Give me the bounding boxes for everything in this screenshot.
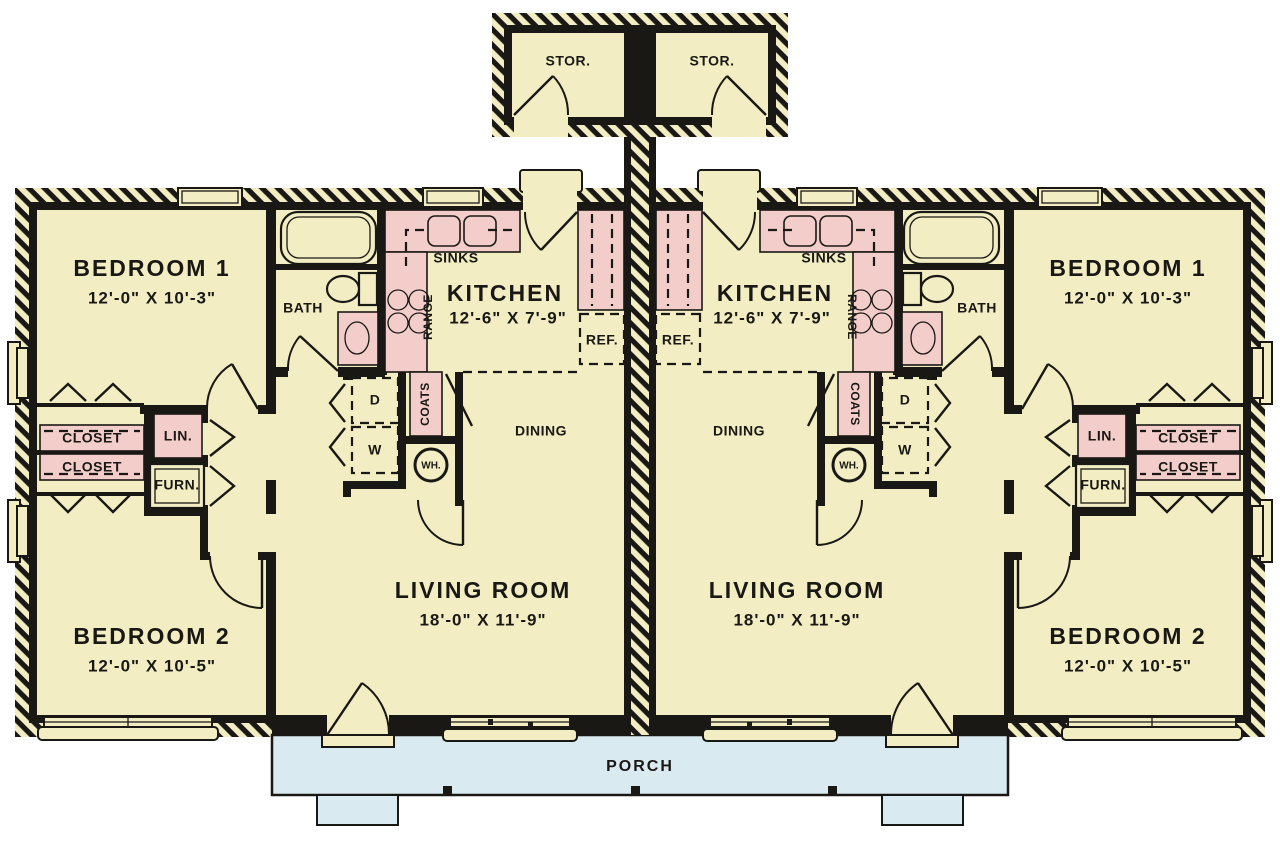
closet-lower-label-right: CLOSET xyxy=(1158,459,1218,475)
living-dims-right: 18'-0" X 11'-9" xyxy=(733,610,860,629)
bedroom1-name-right: BEDROOM 1 xyxy=(1049,255,1206,281)
bath-label-right: BATH xyxy=(957,300,997,316)
kitchen-dims-left: 12'-6" X 7'-9" xyxy=(449,308,567,327)
storage-label-left: STOR. xyxy=(545,53,590,69)
kitchen-name-left: KITCHEN xyxy=(447,280,563,306)
coats-label-right: COATS xyxy=(848,382,862,426)
washer-label-right: W xyxy=(898,442,912,458)
water-heater-label-right: WH. xyxy=(839,461,859,472)
sinks-label-right: SINKS xyxy=(801,250,846,266)
floor-plan: STOR. STOR. PORCH BEDROOM 1 12'-0" X 10'… xyxy=(0,0,1280,845)
porch-post xyxy=(631,786,640,795)
living-dims-left: 18'-0" X 11'-9" xyxy=(419,610,546,629)
living-name-right: LIVING ROOM xyxy=(709,577,886,603)
bedroom1-dims-right: 12'-0" X 10'-3" xyxy=(1064,288,1192,307)
kitchen-name-right: KITCHEN xyxy=(717,280,833,306)
storage-door-opening xyxy=(514,113,568,137)
dining-label-right: DINING xyxy=(713,423,765,439)
sinks-label-left: SINKS xyxy=(433,250,478,266)
bedroom2-name-left: BEDROOM 2 xyxy=(73,623,230,649)
linen-label-right: LIN. xyxy=(1088,428,1116,444)
bedroom2-name-right: BEDROOM 2 xyxy=(1049,623,1206,649)
furnace-label-right: FURN. xyxy=(1080,477,1125,493)
range-label-right: RANGE xyxy=(845,294,859,340)
linen-label-left: LIN. xyxy=(164,428,192,444)
dryer-label-left: D xyxy=(370,392,381,408)
kitchen-dims-right: 12'-6" X 7'-9" xyxy=(713,308,831,327)
bath-label-left: BATH xyxy=(283,300,323,316)
living-name-left: LIVING ROOM xyxy=(395,577,572,603)
bedroom2-dims-left: 12'-0" X 10'-5" xyxy=(88,656,216,675)
storage-label-right: STOR. xyxy=(689,53,734,69)
furnace-label-left: FURN. xyxy=(154,477,199,493)
coats-label-left: COATS xyxy=(418,382,432,426)
washer-label-left: W xyxy=(368,442,382,458)
dining-label-left: DINING xyxy=(515,423,567,439)
floor-plan-canvas: STOR. STOR. PORCH BEDROOM 1 12'-0" X 10'… xyxy=(0,0,1280,845)
refrigerator-label-right: REF. xyxy=(662,332,694,348)
refrigerator-label-left: REF. xyxy=(586,332,618,348)
water-heater-label-left: WH. xyxy=(421,461,441,472)
closet-lower-label-left: CLOSET xyxy=(62,459,122,475)
range-label-left: RANGE xyxy=(421,294,435,340)
bedroom1-dims-left: 12'-0" X 10'-3" xyxy=(88,288,216,307)
bedroom2-dims-right: 12'-0" X 10'-5" xyxy=(1064,656,1192,675)
porch-label: PORCH xyxy=(606,758,674,775)
closet-upper-label-left: CLOSET xyxy=(62,430,122,446)
storage-door-opening xyxy=(712,113,766,137)
storage-building xyxy=(492,13,788,137)
bedroom1-name-left: BEDROOM 1 xyxy=(73,255,230,281)
party-wall xyxy=(624,33,656,735)
dryer-label-right: D xyxy=(900,392,911,408)
closet-upper-label-right: CLOSET xyxy=(1158,430,1218,446)
